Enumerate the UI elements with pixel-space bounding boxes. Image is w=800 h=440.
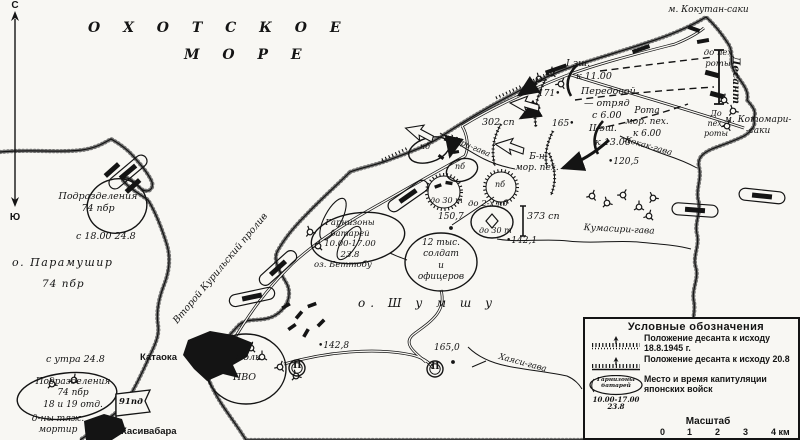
strait-second-kuril-label: Второй Курильский пролив <box>160 198 282 340</box>
circled-2-label-a: II <box>431 362 439 373</box>
height-142-1-label: •142,1 <box>506 236 537 247</box>
desant-label: Десант <box>729 56 742 104</box>
marine-battalion-label: Б-н мор. пех. <box>506 152 568 175</box>
vanguard-label-line1: Передовой <box>581 86 636 98</box>
time-from-morning-248-label: с утра 24.8 <box>46 354 105 366</box>
legend-box: Условные обозначения Положение десанта к… <box>583 317 800 440</box>
pvo-regiment-label-line1: Полк <box>235 352 261 364</box>
historical-military-map: С Ю О Х О Т С К О ЕМ О Р Ем. Кокутан-сак… <box>0 0 800 440</box>
pvo-regiment-label-line2: ПВО <box>233 372 256 384</box>
height-120-5-label: •120,5 <box>608 157 639 168</box>
marine-company-label: Рота мор. пех. к 6.00 <box>618 106 676 140</box>
scale-tick-3: 3 <box>743 427 748 437</box>
legend-item2-label: Положение десанта к исходу 20.8 <box>644 355 790 365</box>
town-kataoka-label: Катаока <box>140 352 177 364</box>
river-hayasi-label: Хаяси-гава <box>497 352 547 375</box>
echelon1-time-label: к 11.00 <box>576 71 612 83</box>
scale-title: Масштаб <box>648 416 768 427</box>
height-171-label: 171• <box>538 89 561 100</box>
time-from-1800-248-label: с 18.00 24.8 <box>76 231 136 243</box>
river-mori-label: Мори-гава <box>447 133 492 159</box>
flag-91pd-label: 91пд <box>119 397 143 408</box>
pb-label-2: пб <box>455 162 465 172</box>
units-74pbr-north-label: Подразделения 74 пбр <box>48 191 148 215</box>
island-paramushir-label: о. Парамушир <box>12 256 113 270</box>
island-shumshu-label: о. Ш у м ш у <box>358 296 497 311</box>
scale-tick-0: 0 <box>660 427 665 437</box>
height-142-8-label: •142,8 <box>318 341 349 352</box>
legend-symbol-capitulation-icon: Гарнизоны батарей 10.00-17.00 23.8 <box>588 375 644 415</box>
paramushir-74pbr-label: 74 пбр <box>42 278 85 291</box>
pb-label-1: пб <box>420 142 430 152</box>
height-165-label: 165• <box>552 119 575 130</box>
units-74pbr-south-label: Подразделения 74 пбр 18 и 19 отд. <box>25 377 121 411</box>
echelon2-label: II эш. <box>589 123 617 135</box>
town-kasivabara-label: Касивабара <box>121 426 177 438</box>
echelon1-label: I эш. <box>566 58 590 70</box>
scale-bar: 0 1 2 3 4 км <box>660 427 795 440</box>
height-165-0-label: 165,0 <box>434 343 460 354</box>
sea-okhotsk-name-line1: О Х О Т С К О Е <box>88 20 350 38</box>
heavy-mortar-battalions-label: д-ны тяж. мортир <box>18 414 98 437</box>
legend-symbol-landing-20-8-icon <box>588 357 644 374</box>
legend-capitulation-sample-time: 10.00-17.00 23.8 <box>586 396 646 411</box>
lake-bettobu-label: оз. Беттобу <box>314 260 372 271</box>
garrison-batteries-label: Гарнизоны батарей 10.00-17.00 23.8 <box>305 218 395 261</box>
tanks-30-label-1: до 30 т <box>430 196 463 206</box>
pb-label-3: пб <box>495 180 505 190</box>
legend-item1-label: Положение десанта к исходу 18.8.1945 г. <box>644 334 794 354</box>
infantry-company-south-label: До пех. роты <box>698 109 734 139</box>
scale-tick-4: 4 км <box>771 427 790 437</box>
circled-2-label-b: II <box>293 361 301 372</box>
legend-capitulation-sample-label: Гарнизоны батарей <box>590 377 642 390</box>
sea-okhotsk-name-line2: М О Р Е <box>184 47 311 65</box>
tanks-30-label-2: до 30 т <box>479 226 512 236</box>
cape-kokutan-label: м. Кокутан-саки <box>668 5 749 16</box>
infantry-2bn-label: до 2-х пб <box>468 199 508 210</box>
river-kumasiri-label: Кумасири-гава <box>583 223 654 238</box>
twelve-thousand-label: 12 тыс. солдат и офицеров <box>406 238 476 283</box>
height-150-7-label: 150,7 <box>438 212 464 223</box>
legend-item3-label: Место и время капитуляции японских войск <box>644 375 794 395</box>
scale-tick-2: 2 <box>715 427 720 437</box>
regiment-373-label: 373 сп <box>527 211 560 223</box>
scale-tick-1: 1 <box>687 427 692 437</box>
regiment-302-label: 302 сп <box>482 117 515 129</box>
legend-symbol-landing-18-8-icon <box>588 336 644 353</box>
legend-title: Условные обозначения <box>598 321 794 333</box>
